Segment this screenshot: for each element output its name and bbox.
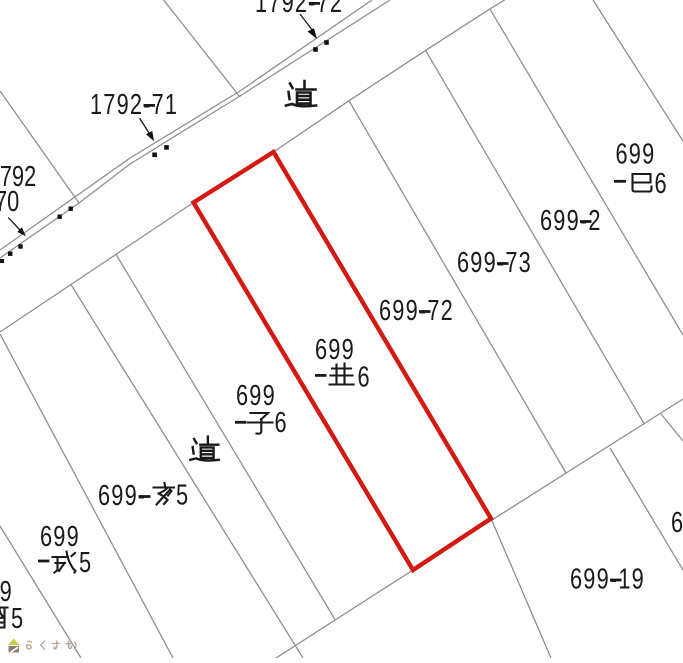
svg-text:6: 6 (275, 407, 288, 439)
svg-text:699-19: 699-19 (570, 564, 645, 596)
svg-text:699-2: 699-2 (540, 205, 602, 237)
svg-text:5: 5 (11, 603, 24, 635)
svg-text:1792-71: 1792-71 (90, 89, 178, 121)
svg-text:699: 699 (616, 139, 656, 171)
svg-text:699-72: 699-72 (379, 295, 454, 327)
svg-text:-70: -70 (0, 186, 19, 218)
svg-text:699: 699 (236, 380, 276, 412)
svg-text:1792-72: 1792-72 (255, 0, 343, 19)
svg-text:5: 5 (176, 480, 189, 512)
svg-text:6: 6 (671, 507, 683, 539)
svg-text:699: 699 (315, 334, 355, 366)
svg-text:5: 5 (79, 547, 92, 579)
svg-text:6: 6 (358, 362, 371, 394)
svg-text:699: 699 (40, 521, 80, 553)
svg-text:699-73: 699-73 (457, 247, 532, 279)
svg-text:6: 6 (655, 168, 668, 200)
